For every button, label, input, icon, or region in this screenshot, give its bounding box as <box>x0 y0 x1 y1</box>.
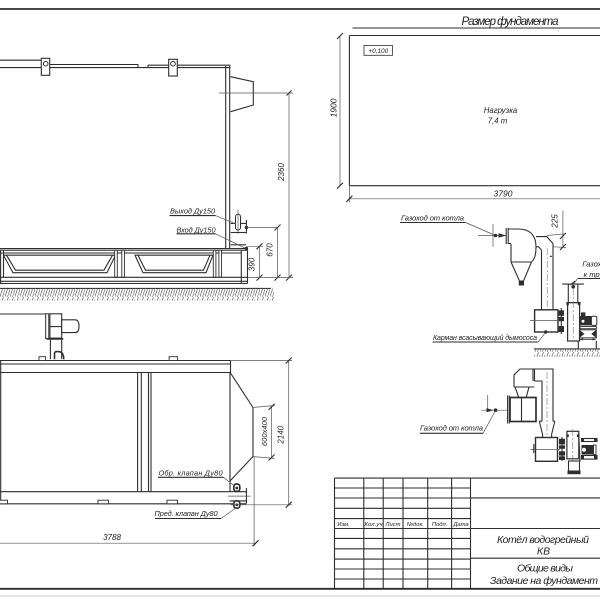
svg-text:Дата: Дата <box>452 522 469 528</box>
svg-text:600х400: 600х400 <box>260 416 269 446</box>
svg-text:Задание на фундамент: Задание на фундамент <box>490 575 598 587</box>
svg-text:Нагрузка: Нагрузка <box>484 106 518 115</box>
svg-text:№док.: №док. <box>407 522 424 528</box>
svg-text:Вход Ду150: Вход Ду150 <box>177 225 216 234</box>
svg-text:Газоход от котла: Газоход от котла <box>420 424 483 433</box>
svg-text:Размер фундамента: Размер фундамента <box>462 16 559 28</box>
svg-text:Кол.уч: Кол.уч <box>365 522 383 528</box>
svg-text:2360: 2360 <box>277 163 286 182</box>
svg-text:670: 670 <box>266 243 275 257</box>
svg-text:Газоход: Газоход <box>582 259 600 268</box>
svg-text:Лист: Лист <box>385 522 401 528</box>
svg-text:1900: 1900 <box>329 98 339 117</box>
svg-text:2140: 2140 <box>277 425 286 444</box>
svg-text:Газоход от котла: Газоход от котла <box>401 214 464 223</box>
svg-text:Изм.: Изм. <box>337 522 349 528</box>
svg-text:Подп.: Подп. <box>432 522 447 528</box>
svg-text:Обр. клапан Ду80: Обр. клапан Ду80 <box>159 469 223 478</box>
svg-text:+0,100: +0,100 <box>368 48 388 55</box>
svg-text:Выход Ду150: Выход Ду150 <box>170 207 215 216</box>
svg-text:Пред. клапан Ду80: Пред. клапан Ду80 <box>155 509 218 518</box>
svg-text:Карман всасывающий дымососа: Карман всасывающий дымососа <box>433 334 537 342</box>
svg-text:Общие виды: Общие виды <box>517 563 573 575</box>
svg-text:КВ: КВ <box>537 546 550 558</box>
svg-text:3788: 3788 <box>103 533 121 542</box>
svg-text:390: 390 <box>248 257 257 271</box>
svg-text:3790: 3790 <box>494 189 513 199</box>
svg-text:7,4 т: 7,4 т <box>488 117 508 126</box>
svg-text:Котёл водогрейный: Котёл водогрейный <box>497 534 589 546</box>
svg-text:225: 225 <box>551 214 560 229</box>
svg-text:к трубе: к трубе <box>584 270 600 279</box>
